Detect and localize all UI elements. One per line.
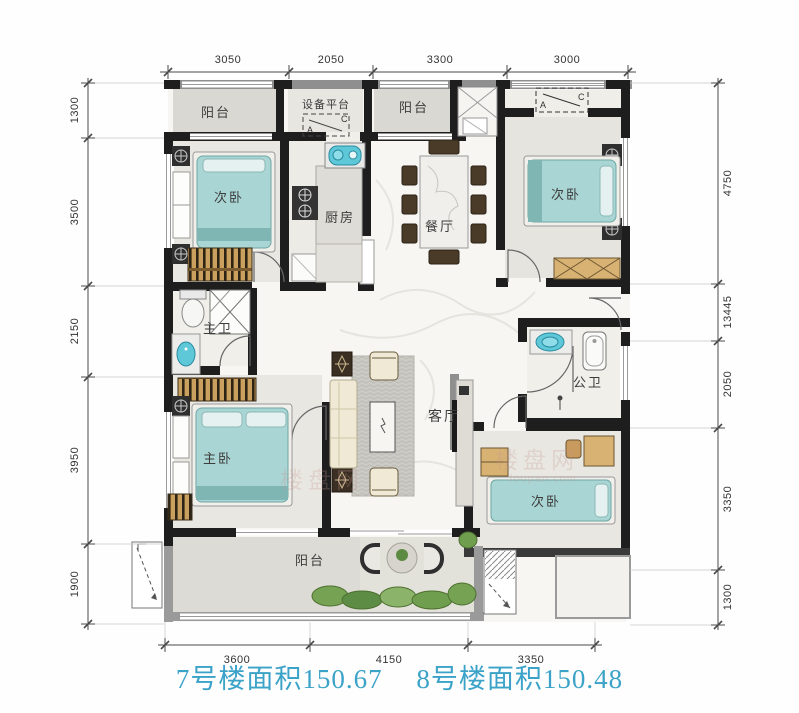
room-label-public-bath: 公卫	[573, 375, 603, 390]
flue-shaft-left-icon	[132, 542, 162, 608]
armchair-bottom	[370, 468, 398, 496]
dim-right-3: 3350	[722, 486, 734, 512]
watermark-cn-1: 楼盘网	[280, 467, 364, 493]
armchair-top	[370, 352, 398, 380]
dim-top-0: 3050	[215, 54, 241, 66]
area-building-7: 7号楼面积150.67	[176, 657, 383, 696]
room-label-equipment-platform: 设备平台	[302, 97, 350, 111]
public-bath-sink-icon	[530, 330, 572, 354]
room-label-master-bath: 主卫	[203, 321, 233, 336]
dim-top-2: 3300	[427, 54, 453, 66]
room-label-balcony-top-right: 阳台	[399, 100, 429, 115]
wardrobe-2	[554, 258, 620, 279]
sofa	[330, 380, 357, 468]
dim-right-0: 4750	[722, 170, 734, 196]
ac-letter-a: A	[307, 125, 313, 135]
bathtub-icon	[583, 332, 606, 370]
dim-right-2: 2050	[722, 371, 734, 397]
stone-table-icon	[362, 543, 442, 574]
dim-left-1: 3500	[69, 199, 81, 225]
floorplan-drawing: A C A C	[0, 0, 799, 713]
room-label-bedroom-top-right: 次卧	[551, 187, 581, 202]
dim-left-4: 1900	[69, 571, 81, 597]
master-bath-sink-icon	[172, 334, 200, 374]
dim-top-1: 2050	[318, 54, 344, 66]
room-label-bedroom-top-left: 次卧	[214, 190, 244, 205]
top-window-lines	[182, 82, 604, 88]
ac-letter-a2: A	[540, 100, 546, 110]
ac-outdoor-box-icon	[458, 87, 497, 136]
plan-title: 7号楼面积150.67 8号楼面积150.48	[0, 657, 799, 696]
room-label-bedroom-bottom-right: 次卧	[531, 494, 561, 509]
coffee-table	[370, 402, 395, 452]
ac-letter-c2: C	[578, 92, 585, 102]
room-label-balcony-top-left: 阳台	[201, 105, 231, 120]
watermark-cn-2: 楼盘网	[495, 447, 579, 473]
dim-right-1: 13445	[722, 295, 734, 328]
flue-shaft-right-icon	[484, 550, 516, 614]
wardrobe-1	[188, 248, 252, 281]
room-label-dining: 餐厅	[425, 219, 455, 234]
room-label-living: 客厅	[428, 408, 460, 424]
floorplan-page: A C A C	[0, 0, 799, 713]
dim-right-4: 1300	[722, 584, 734, 610]
ac-letter-c: C	[341, 114, 348, 124]
area-building-8: 8号楼面积150.48	[416, 657, 623, 696]
room-label-master-bedroom: 主卧	[203, 451, 233, 466]
kitchen-sink-icon	[325, 143, 365, 168]
dim-left-2: 2150	[69, 318, 81, 344]
dim-left-3: 3950	[69, 447, 81, 473]
room-label-kitchen: 厨房	[325, 210, 355, 225]
dim-top-3: 3000	[554, 54, 580, 66]
room-label-balcony-bottom: 阳台	[295, 553, 325, 568]
dim-left-0: 1300	[69, 97, 81, 123]
side-table-top-icon	[332, 352, 352, 376]
watermark-en: loupan.com	[510, 473, 577, 485]
dining-table	[420, 156, 468, 248]
stove-icon	[292, 186, 318, 220]
